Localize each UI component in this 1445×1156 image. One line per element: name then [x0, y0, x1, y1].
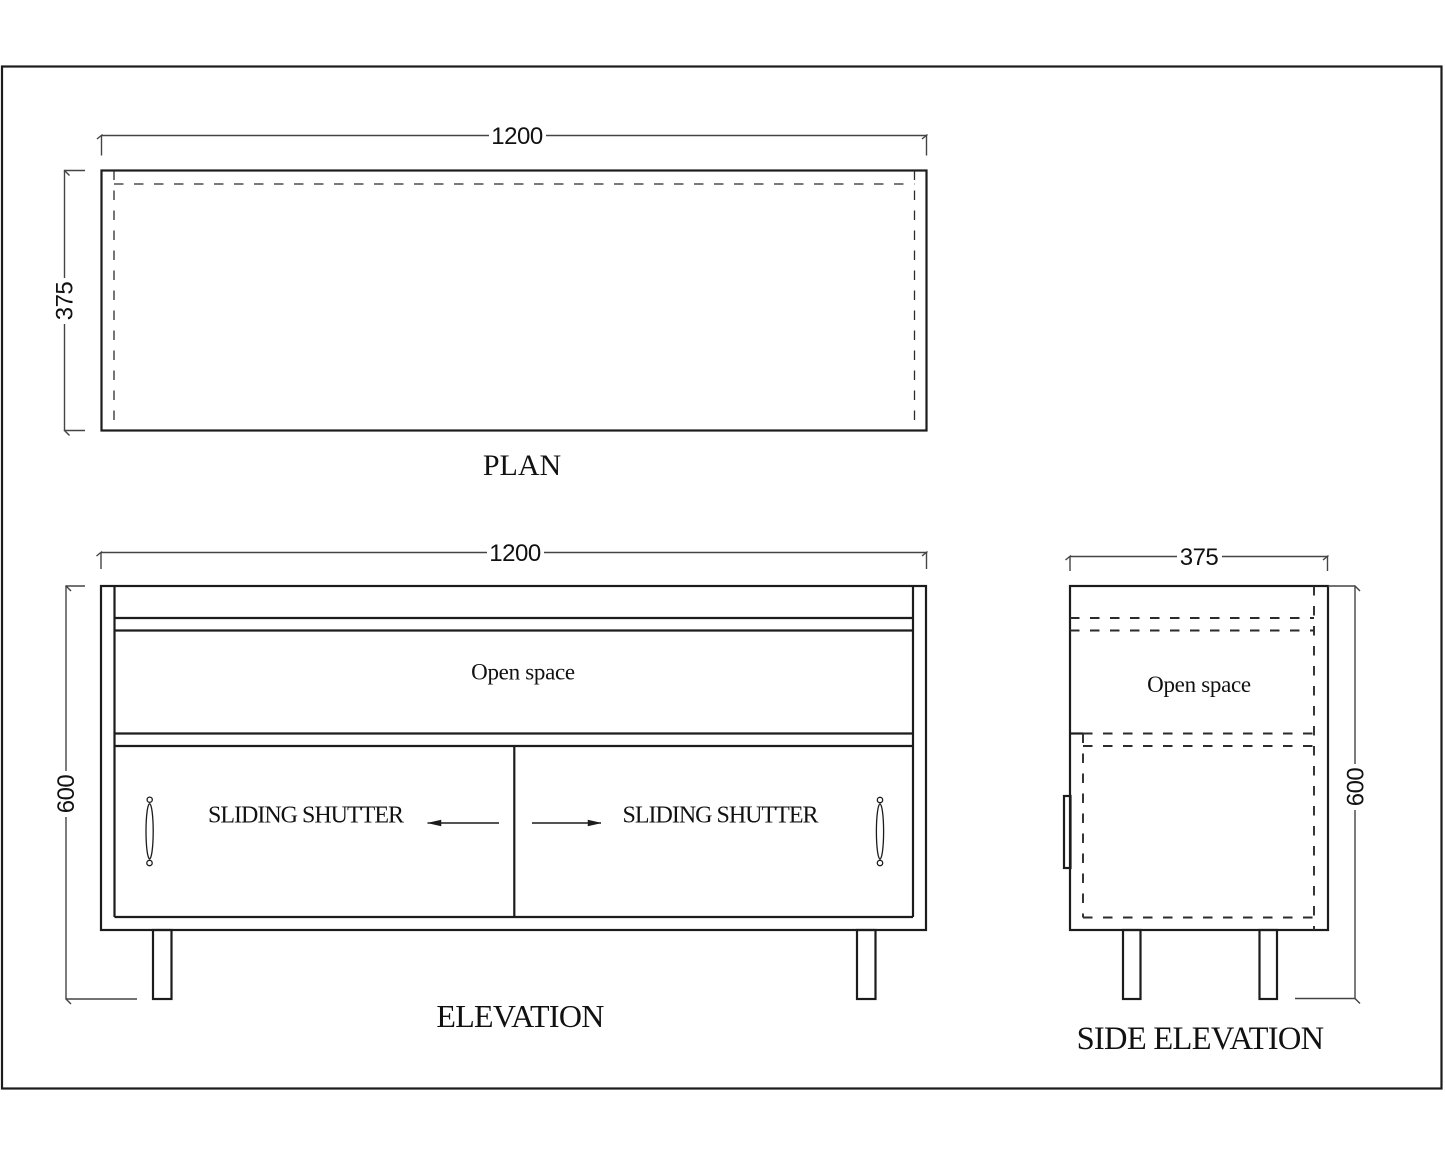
svg-text:Open space: Open space — [1147, 672, 1251, 697]
svg-text:PLAN: PLAN — [483, 449, 561, 482]
svg-text:1200: 1200 — [489, 540, 541, 567]
svg-text:SLIDING SHUTTER: SLIDING SHUTTER — [623, 803, 819, 829]
svg-text:SLIDING SHUTTER: SLIDING SHUTTER — [208, 803, 404, 829]
svg-text:SIDE ELEVATION: SIDE ELEVATION — [1077, 1021, 1324, 1057]
svg-text:Open space: Open space — [471, 660, 575, 685]
svg-text:ELEVATION: ELEVATION — [436, 998, 604, 1034]
svg-text:1200: 1200 — [491, 123, 543, 150]
svg-text:600: 600 — [1343, 768, 1370, 807]
svg-text:375: 375 — [52, 282, 79, 321]
svg-text:600: 600 — [53, 775, 80, 814]
svg-text:375: 375 — [1180, 544, 1219, 571]
